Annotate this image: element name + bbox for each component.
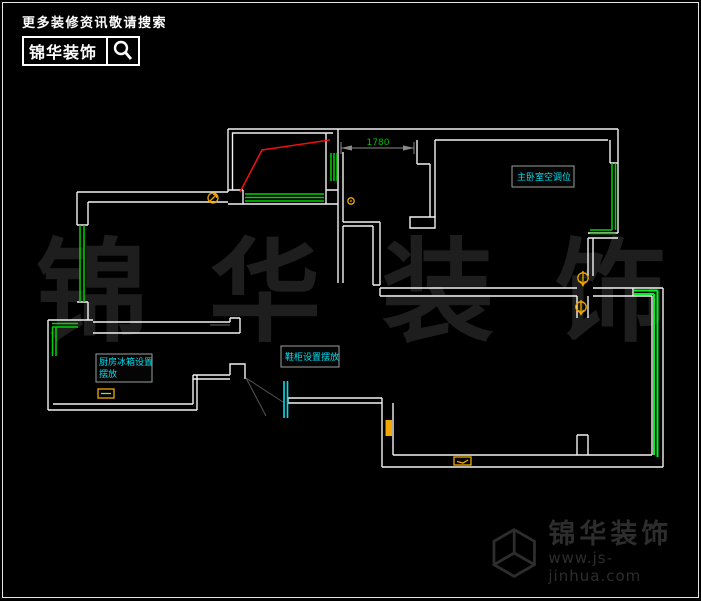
plan-labels: 主卧室空调位 厨房冰箱设置 摆放 鞋柜设置摆放 <box>96 166 574 382</box>
fridge-label-line1: 厨房冰箱设置 <box>99 356 153 368</box>
search-icon <box>106 38 138 64</box>
shoe-cabinet-label: 鞋柜设置摆放 <box>285 351 339 363</box>
bedroom-ac-label: 主卧室空调位 <box>517 171 571 183</box>
dimension-line: 1780 <box>341 138 414 154</box>
red-annotation-line <box>240 140 330 192</box>
header: 更多装修资讯敬请搜索 锦华装饰 <box>22 12 167 66</box>
search-tagline: 更多装修资讯敬请搜索 <box>22 12 167 31</box>
footer-brand: 锦华装饰 <box>548 521 701 549</box>
brand-search-box: 锦华装饰 <box>22 36 140 66</box>
socket-symbol-icon <box>386 420 393 436</box>
cad-poster: 锦 华 装 饰 <box>0 0 701 601</box>
entry-door-swing <box>246 378 283 416</box>
footer-logo: 锦华装饰 www.js-jinhua.com <box>489 521 701 585</box>
door-arrow-icon <box>578 271 588 286</box>
footer-website: www.js-jinhua.com <box>548 549 701 585</box>
socket-symbol-icon <box>98 389 114 398</box>
brand-name: 锦华装饰 <box>24 38 106 64</box>
entry-door-panel <box>284 381 288 418</box>
socket-symbol-icon <box>454 457 471 465</box>
window-accent-lines <box>634 291 658 458</box>
fridge-label-line2: 摆放 <box>99 368 117 380</box>
small-switch-icon <box>348 198 354 204</box>
footer-text: 锦华装饰 www.js-jinhua.com <box>548 521 701 585</box>
floor-plan-svg: 1780 <box>0 0 701 601</box>
cube-logo-icon <box>489 526 539 580</box>
dimension-text: 1780 <box>367 138 390 148</box>
